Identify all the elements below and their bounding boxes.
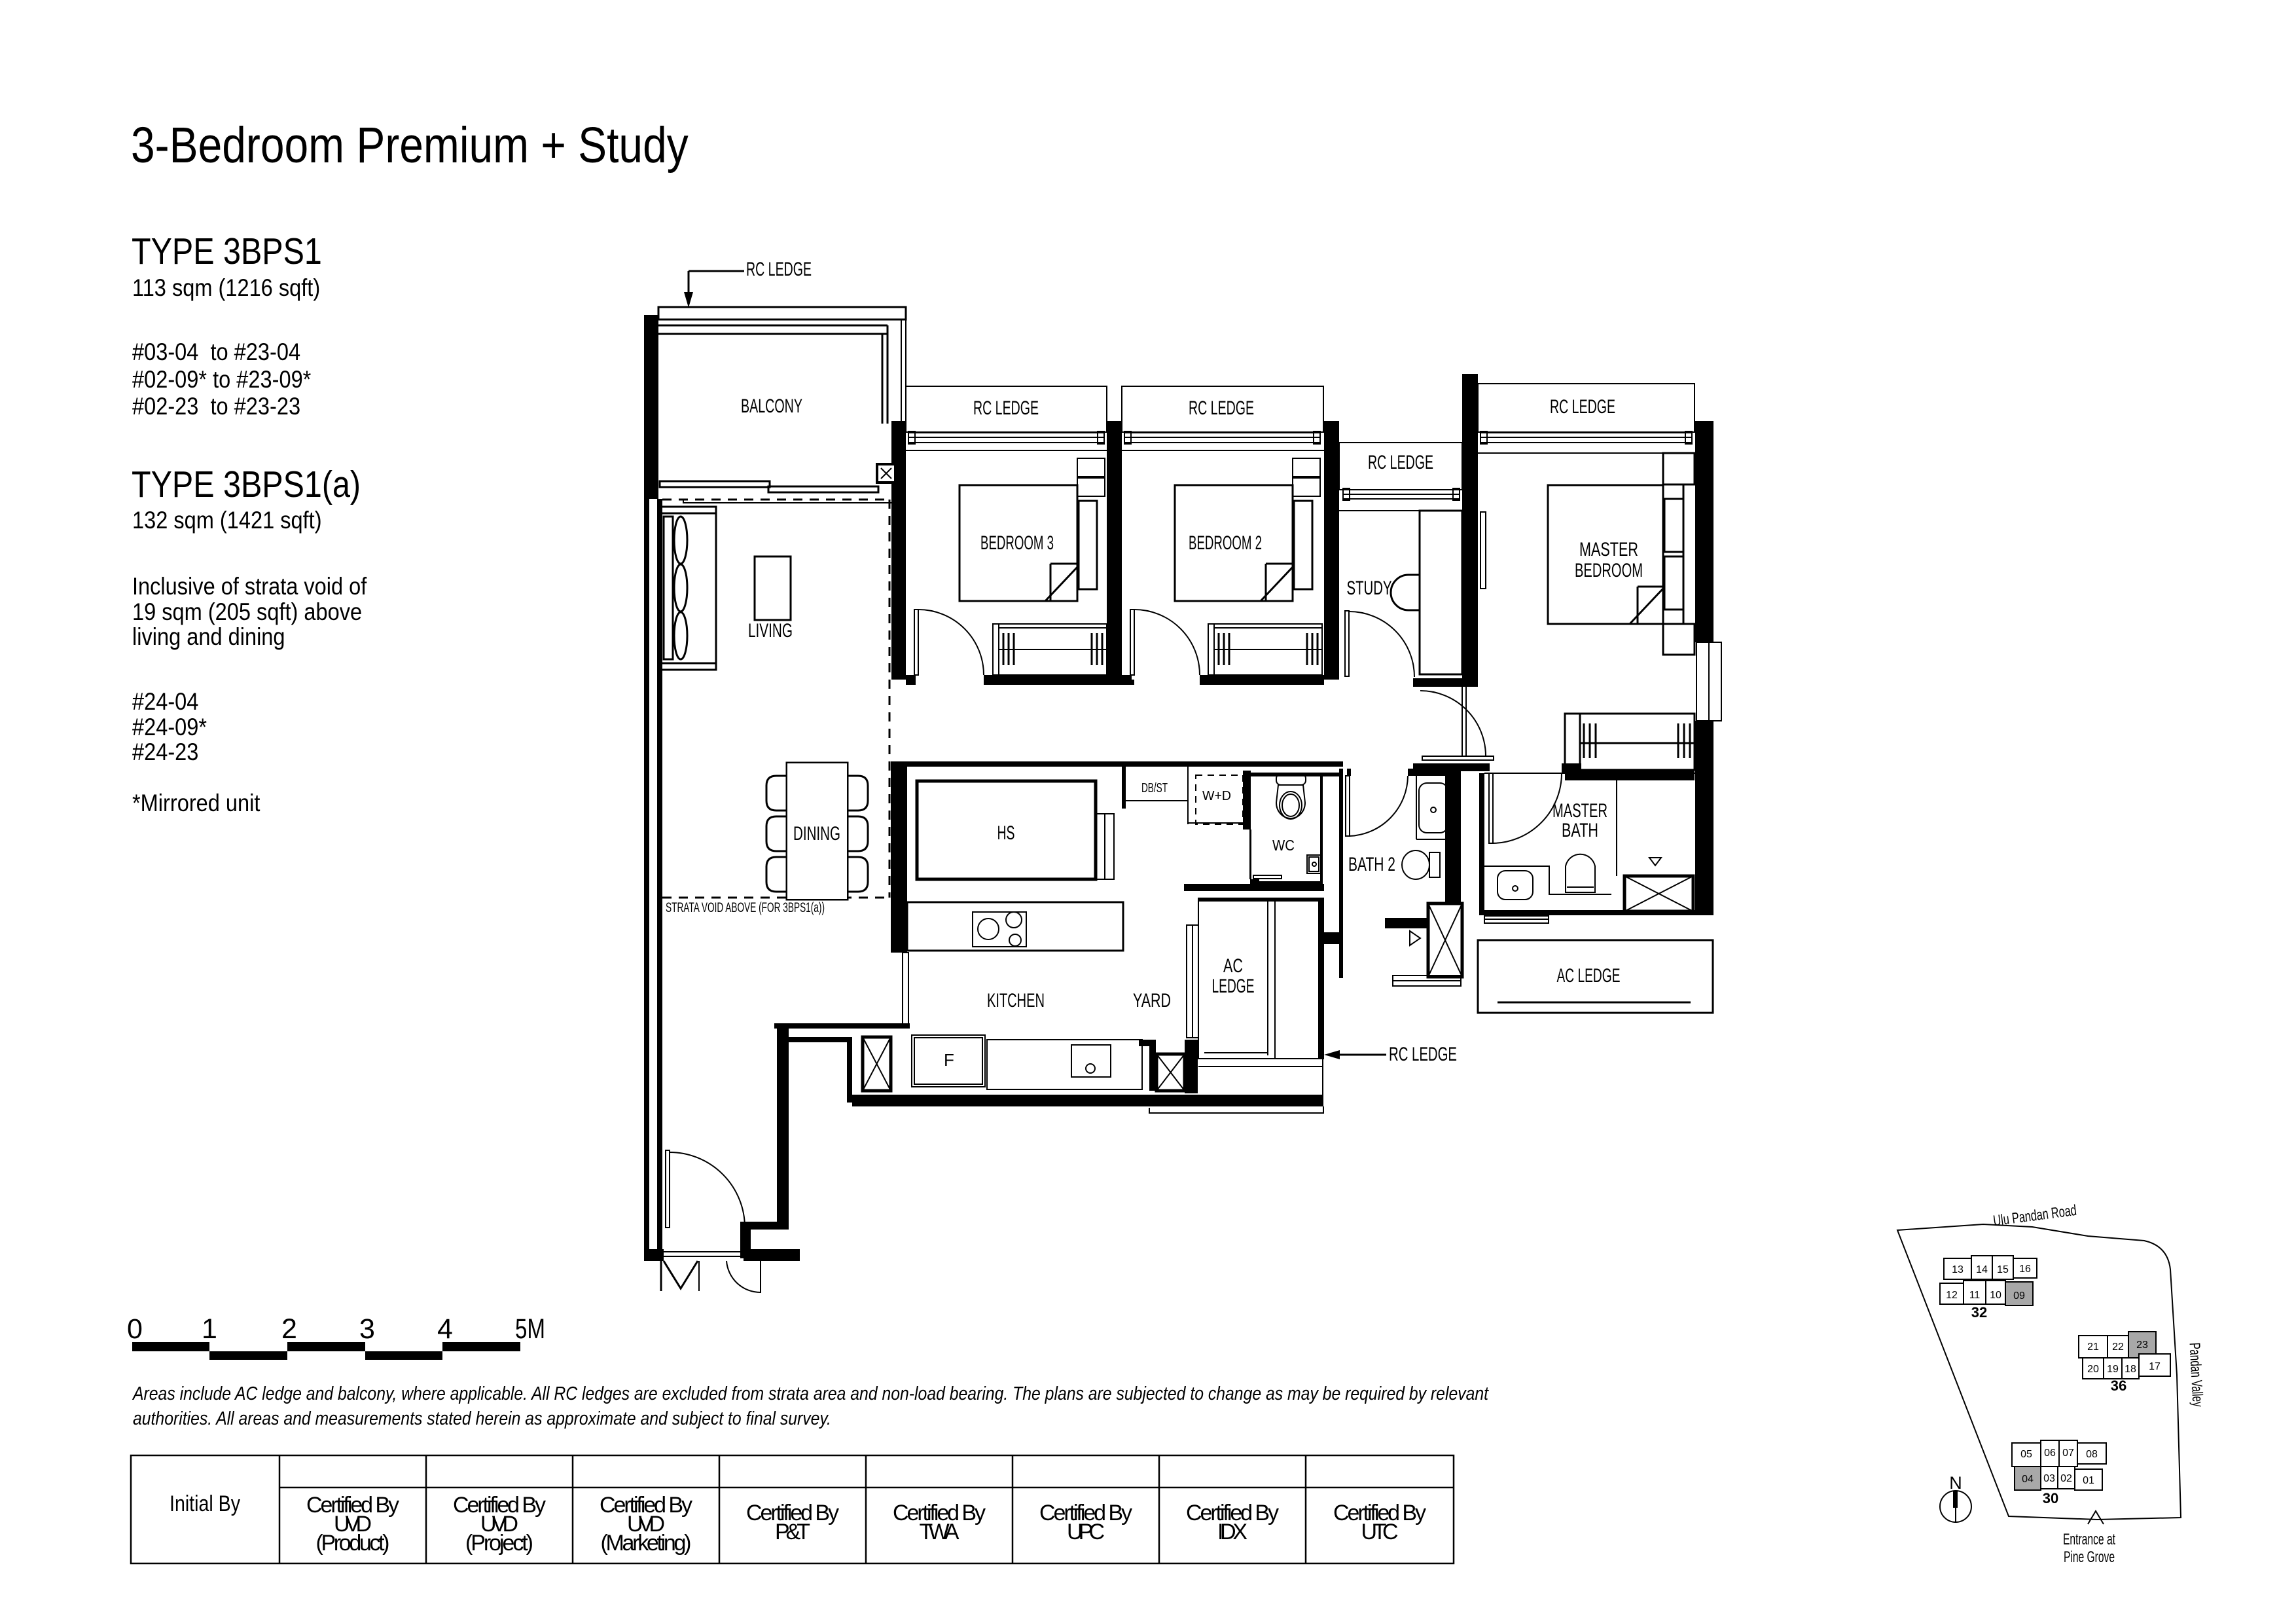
svg-text:23: 23: [2136, 1340, 2148, 1351]
svg-text:12: 12: [1946, 1290, 1958, 1301]
svg-text:MASTER: MASTER: [1552, 800, 1607, 822]
svg-text:Entrance at: Entrance at: [2063, 1531, 2115, 1548]
svg-text:BEDROOM: BEDROOM: [1575, 560, 1643, 581]
svg-text:HS: HS: [997, 822, 1015, 844]
svg-text:18: 18: [2125, 1364, 2136, 1375]
svg-text:MASTER: MASTER: [1579, 539, 1638, 560]
svg-text:13: 13: [1952, 1264, 1964, 1275]
svg-text:06: 06: [2044, 1448, 2056, 1459]
svg-text:15: 15: [1997, 1264, 2009, 1275]
svg-text:36: 36: [2111, 1377, 2126, 1394]
svg-text:W+D: W+D: [1202, 789, 1231, 803]
svg-text:RC LEDGE: RC LEDGE: [1550, 396, 1615, 418]
svg-text:Initial By: Initial By: [170, 1491, 240, 1516]
svg-text:5M: 5M: [515, 1313, 545, 1345]
svg-text:IDX: IDX: [1217, 1520, 1247, 1544]
svg-text:N: N: [1949, 1473, 1962, 1493]
svg-text:UTC: UTC: [1361, 1520, 1399, 1544]
svg-text:11: 11: [1969, 1290, 1981, 1301]
svg-text:3: 3: [359, 1313, 375, 1345]
svg-text:05: 05: [2020, 1449, 2032, 1460]
svg-text:F: F: [944, 1050, 954, 1070]
svg-text:RC LEDGE: RC LEDGE: [973, 397, 1039, 419]
svg-text:4: 4: [437, 1313, 453, 1345]
svg-text:09: 09: [2013, 1290, 2025, 1302]
svg-text:0: 0: [127, 1313, 143, 1345]
svg-text:32: 32: [1971, 1304, 1987, 1321]
svg-text:17: 17: [2149, 1361, 2161, 1372]
svg-text:22: 22: [2112, 1341, 2124, 1353]
svg-text:19: 19: [2107, 1364, 2119, 1375]
svg-text:01: 01: [2083, 1475, 2094, 1486]
svg-text:STUDY: STUDY: [1347, 577, 1392, 599]
svg-text:AC LEDGE: AC LEDGE: [1557, 965, 1621, 987]
svg-text:08: 08: [2086, 1449, 2098, 1460]
svg-text:BEDROOM 2: BEDROOM 2: [1189, 532, 1262, 554]
svg-text:DINING: DINING: [793, 823, 840, 845]
svg-text:14: 14: [1976, 1264, 1988, 1275]
svg-text:RC LEDGE: RC LEDGE: [746, 259, 812, 280]
svg-text:10: 10: [1990, 1290, 2001, 1301]
svg-text:16: 16: [2019, 1264, 2031, 1275]
svg-text:DB/ST: DB/ST: [1141, 781, 1168, 795]
svg-text:04: 04: [2022, 1474, 2034, 1485]
svg-text:STRATA VOID ABOVE (FOR 3BPS1(a: STRATA VOID ABOVE (FOR 3BPS1(a)): [666, 900, 825, 915]
svg-text:UPC: UPC: [1067, 1520, 1105, 1544]
svg-text:1: 1: [202, 1313, 217, 1345]
svg-text:LEDGE: LEDGE: [1212, 976, 1255, 997]
svg-text:BATH 2: BATH 2: [1348, 854, 1395, 875]
svg-text:RC LEDGE: RC LEDGE: [1189, 397, 1254, 419]
svg-text:BATH: BATH: [1562, 820, 1598, 841]
svg-text:TWA: TWA: [920, 1520, 960, 1544]
svg-text:BALCONY: BALCONY: [741, 395, 802, 417]
svg-text:BEDROOM 3: BEDROOM 3: [980, 532, 1054, 554]
svg-text:20: 20: [2087, 1364, 2099, 1375]
svg-text:YARD: YARD: [1133, 990, 1171, 1012]
svg-text:21: 21: [2087, 1341, 2099, 1353]
svg-text:WC: WC: [1272, 837, 1295, 854]
svg-text:Pandan Valley: Pandan Valley: [2186, 1342, 2206, 1408]
svg-text:Pine Grove: Pine Grove: [2064, 1548, 2115, 1566]
svg-text:KITCHEN: KITCHEN: [987, 990, 1045, 1012]
svg-text:RC LEDGE: RC LEDGE: [1368, 452, 1433, 473]
svg-text:30: 30: [2043, 1490, 2058, 1506]
svg-text:(Project): (Project): [465, 1531, 533, 1556]
svg-text:2: 2: [281, 1313, 297, 1345]
svg-text:LIVING: LIVING: [748, 620, 793, 642]
svg-text:03: 03: [2043, 1473, 2055, 1484]
svg-text:P&T: P&T: [775, 1520, 810, 1544]
svg-text:(Product): (Product): [316, 1531, 390, 1556]
svg-text:02: 02: [2060, 1473, 2072, 1484]
svg-text:(Marketing): (Marketing): [601, 1531, 692, 1556]
svg-text:RC LEDGE: RC LEDGE: [1389, 1044, 1457, 1065]
svg-text:AC: AC: [1223, 955, 1243, 977]
svg-text:Ulu Pandan Road: Ulu Pandan Road: [1992, 1201, 2077, 1229]
svg-text:07: 07: [2062, 1448, 2074, 1459]
